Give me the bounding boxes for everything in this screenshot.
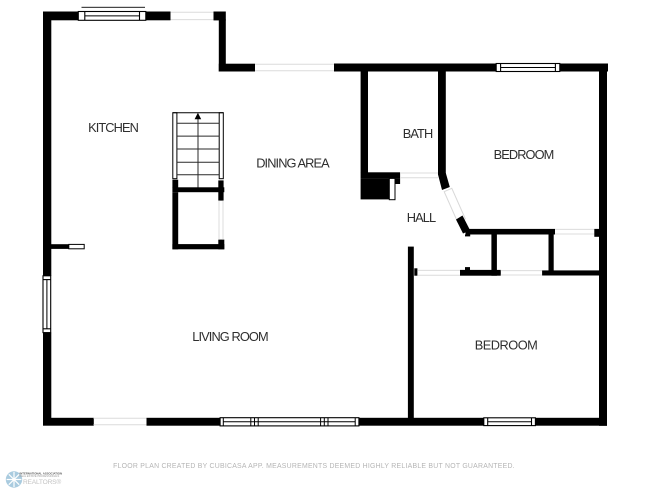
- svg-text:KITCHEN: KITCHEN: [88, 120, 139, 135]
- svg-text:LIVING ROOM: LIVING ROOM: [192, 329, 268, 344]
- svg-text:REAL ESTATE PROFESSIONALS: REAL ESTATE PROFESSIONALS: [20, 474, 60, 478]
- svg-text:REALTORS®: REALTORS®: [23, 478, 61, 486]
- svg-text:BATH: BATH: [403, 126, 433, 141]
- svg-text:DINING AREA: DINING AREA: [256, 156, 330, 171]
- svg-text:BEDROOM: BEDROOM: [494, 147, 554, 162]
- svg-text:HALL: HALL: [407, 210, 436, 225]
- svg-text:BEDROOM: BEDROOM: [475, 337, 538, 352]
- svg-text:FLOOR PLAN CREATED BY CUBICASA: FLOOR PLAN CREATED BY CUBICASA APP. MEAS…: [113, 463, 515, 470]
